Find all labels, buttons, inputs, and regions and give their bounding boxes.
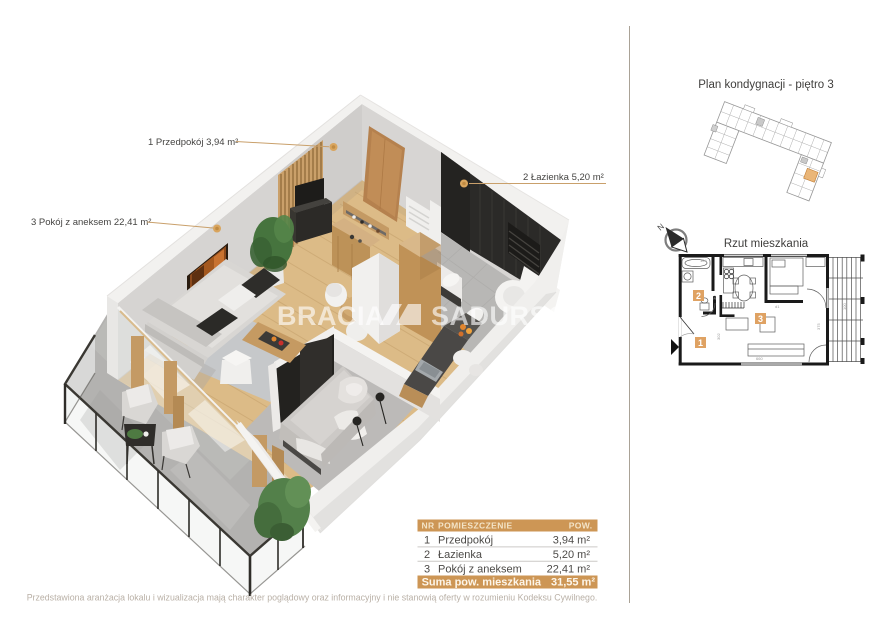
svg-text:100: 100 bbox=[842, 303, 847, 310]
svg-text:1 Przedpokój 3,94 m²: 1 Przedpokój 3,94 m² bbox=[148, 137, 238, 148]
svg-text:d1: d1 bbox=[775, 304, 780, 309]
svg-text:2: 2 bbox=[696, 291, 701, 301]
svg-text:31,55 m²: 31,55 m² bbox=[551, 577, 595, 589]
svg-text:Przedpokój: Przedpokój bbox=[438, 535, 493, 547]
svg-text:N: N bbox=[656, 222, 666, 233]
svg-text:2: 2 bbox=[424, 549, 430, 561]
svg-text:3,94 m²: 3,94 m² bbox=[553, 535, 591, 547]
svg-text:Pokój z aneksem: Pokój z aneksem bbox=[438, 564, 522, 576]
svg-text:302: 302 bbox=[716, 333, 721, 340]
svg-text:Rzut mieszkania: Rzut mieszkania bbox=[724, 238, 809, 250]
svg-text:Plan kondygnacji - piętro 3: Plan kondygnacji - piętro 3 bbox=[698, 79, 834, 91]
svg-text:375: 375 bbox=[816, 323, 821, 330]
svg-text:POW.: POW. bbox=[569, 520, 593, 530]
svg-text:5,20 m²: 5,20 m² bbox=[553, 549, 591, 561]
svg-text:Łazienka: Łazienka bbox=[438, 549, 483, 561]
svg-text:1: 1 bbox=[698, 338, 703, 348]
svg-text:3 Pokój z aneksem 22,41 m²: 3 Pokój z aneksem 22,41 m² bbox=[31, 217, 151, 228]
svg-text:POMIESZCZENIE: POMIESZCZENIE bbox=[438, 520, 513, 530]
svg-text:3: 3 bbox=[758, 314, 763, 324]
svg-text:BRACIA: BRACIA bbox=[277, 301, 385, 331]
svg-text:NR: NR bbox=[422, 520, 435, 530]
svg-text:3: 3 bbox=[424, 564, 430, 576]
svg-text:104: 104 bbox=[700, 258, 707, 263]
svg-text:660: 660 bbox=[756, 356, 763, 361]
svg-text:2 Łazienka 5,20 m²: 2 Łazienka 5,20 m² bbox=[523, 172, 604, 183]
svg-text:1: 1 bbox=[424, 535, 430, 547]
svg-text:22,41 m²: 22,41 m² bbox=[547, 564, 591, 576]
svg-text:30: 30 bbox=[712, 295, 717, 300]
svg-text:Przedstawiona aranżacja lokalu: Przedstawiona aranżacja lokalu i wizuali… bbox=[27, 593, 598, 603]
svg-text:SADURSCY: SADURSCY bbox=[431, 301, 587, 331]
svg-text:Suma pow. mieszkania: Suma pow. mieszkania bbox=[422, 577, 542, 589]
